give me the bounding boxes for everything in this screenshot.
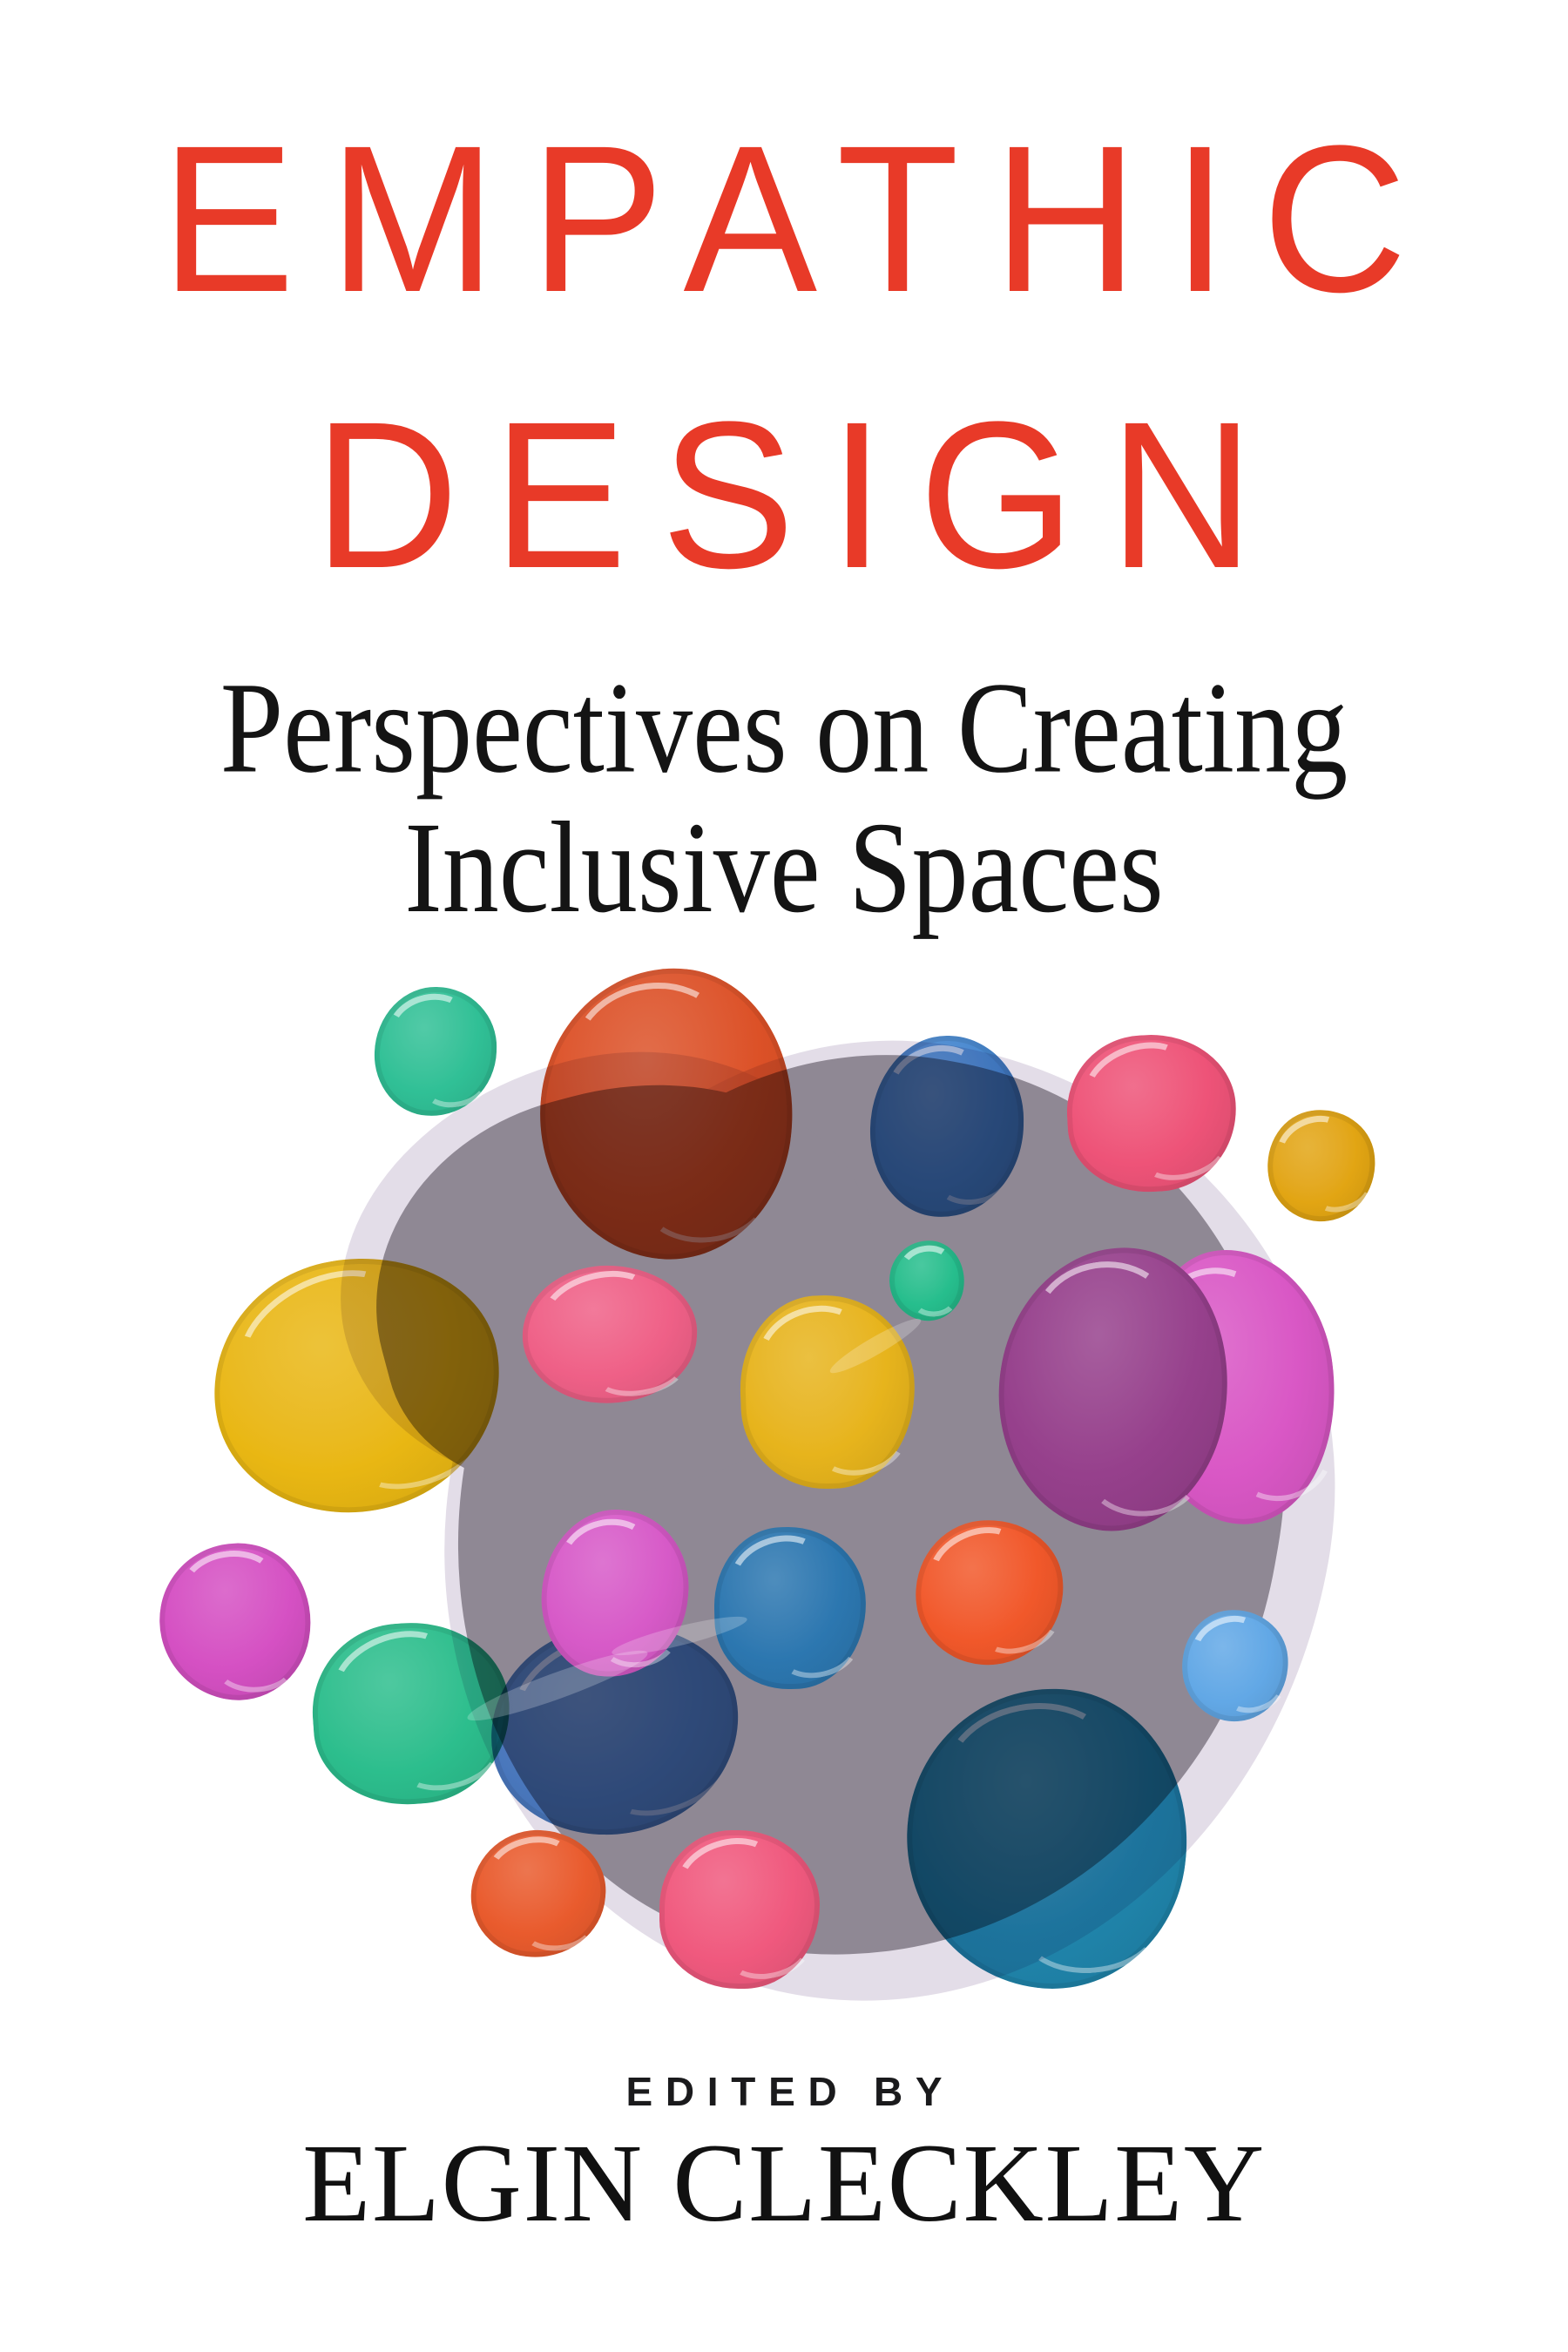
book-cover: EMPATHIC DESIGN Perspectives on Creating… xyxy=(0,0,1568,2352)
watercolor-circle-pink-bottom xyxy=(659,1830,820,1989)
watercolor-illustration xyxy=(0,0,1568,2352)
watercolor-circle-magenta-left xyxy=(147,1531,324,1711)
edited-by-label: EDITED BY xyxy=(0,2068,1568,2115)
author-name: ELGIN CLECKLEY xyxy=(0,2119,1568,2247)
watercolor-circle-steel-blue-middle xyxy=(713,1525,867,1690)
watercolor-circle-gold-top-right xyxy=(1260,1103,1383,1228)
watercolor-circle-pink-top-right xyxy=(1063,1031,1240,1196)
